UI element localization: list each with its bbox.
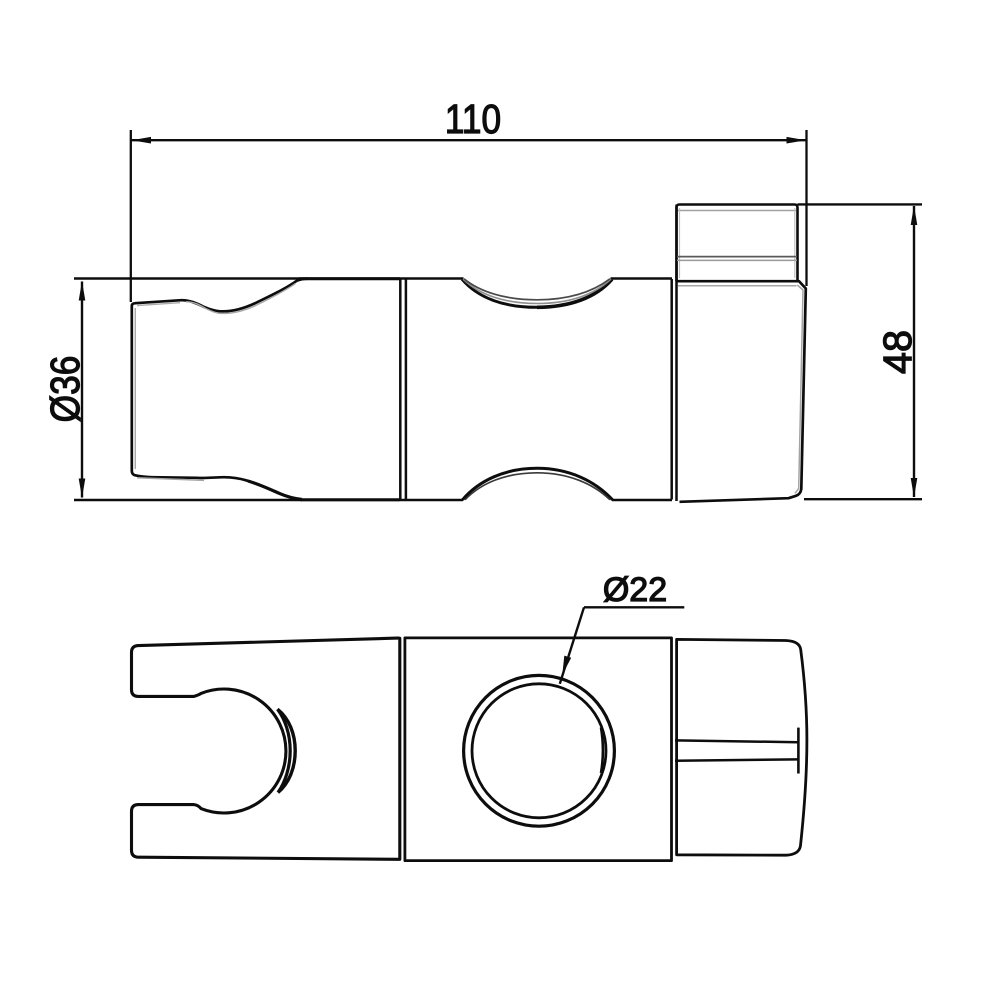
svg-text:Ø22: Ø22 (603, 571, 667, 609)
svg-text:110: 110 (445, 98, 501, 143)
svg-text:Ø36: Ø36 (44, 356, 89, 423)
svg-text:48: 48 (876, 330, 920, 374)
